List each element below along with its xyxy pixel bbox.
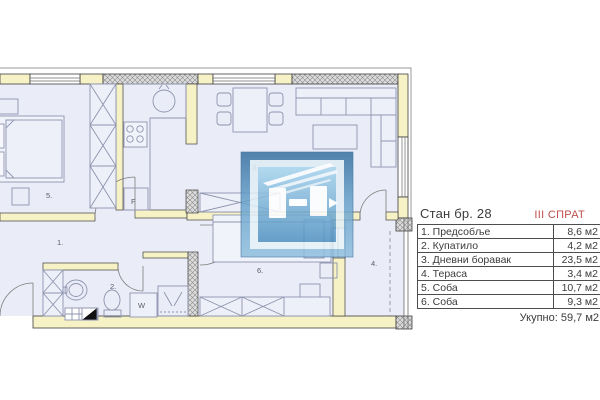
room-area: 10,7 м2	[553, 281, 600, 294]
wardrobe-room6	[200, 297, 330, 316]
label-terrace: 4.	[371, 259, 377, 268]
apartment-title: Стан бр. 28	[420, 206, 492, 221]
total-area: Укупно: 59,7 м2	[417, 312, 600, 324]
rooms-table: 1. Предсобље 8,6 м2 2. Купатило 4,2 м2 3…	[417, 224, 600, 309]
table-row: 4. Тераса 3,4 м2	[418, 267, 600, 281]
panel-header: Стан бр. 28 III СПРАТ	[417, 206, 600, 224]
floor-plan-drawing: 5. 1. 2. 3. 6. 4. F W	[0, 0, 600, 400]
room-area: 8,6 м2	[553, 225, 600, 238]
label-washer: W	[138, 301, 146, 310]
room-name: 2. Купатило	[418, 240, 553, 252]
utility-shaft	[65, 308, 98, 320]
label-hallway: 1.	[57, 238, 63, 247]
room-name: 4. Тераса	[418, 268, 553, 280]
label-bathroom: 2.	[110, 282, 116, 291]
table-row: 2. Купатило 4,2 м2	[418, 239, 600, 253]
room-name: 3. Дневни боравак	[418, 254, 553, 266]
floorplan-page: 5. 1. 2. 3. 6. 4. F W Стан бр. 28 III СП…	[0, 0, 600, 400]
table-row: 3. Дневни боравак 23,5 м2	[418, 253, 600, 267]
label-fridge: F	[131, 197, 136, 206]
table-row: 1. Предсобље 8,6 м2	[418, 225, 600, 239]
table-row: 6. Соба 9,3 м2	[418, 295, 600, 309]
room-name: 6. Соба	[418, 296, 553, 308]
dining-table	[233, 88, 267, 132]
wardrobe-room5	[90, 84, 116, 208]
room-schedule-panel: Стан бр. 28 III СПРАТ 1. Предсобље 8,6 м…	[417, 206, 600, 324]
label-room6: 6.	[257, 266, 263, 275]
room-name: 5. Соба	[418, 282, 553, 294]
room-area: 4,2 м2	[553, 239, 600, 252]
window-right	[398, 137, 408, 197]
room-area: 23,5 м2	[553, 253, 600, 266]
window-top-center	[213, 74, 275, 84]
room-name: 1. Предсобље	[418, 226, 553, 238]
stove	[124, 122, 147, 147]
room-area: 3,4 м2	[553, 267, 600, 280]
window-top-left	[30, 74, 80, 84]
table-row: 5. Соба 10,7 м2	[418, 281, 600, 295]
hallway-closet	[43, 270, 63, 316]
floor-label: III СПРАТ	[534, 209, 585, 221]
room-area: 9,3 м2	[553, 295, 600, 308]
label-room5: 5.	[46, 191, 52, 200]
bed-room5	[0, 116, 64, 182]
agency-logo-watermark	[241, 152, 353, 257]
